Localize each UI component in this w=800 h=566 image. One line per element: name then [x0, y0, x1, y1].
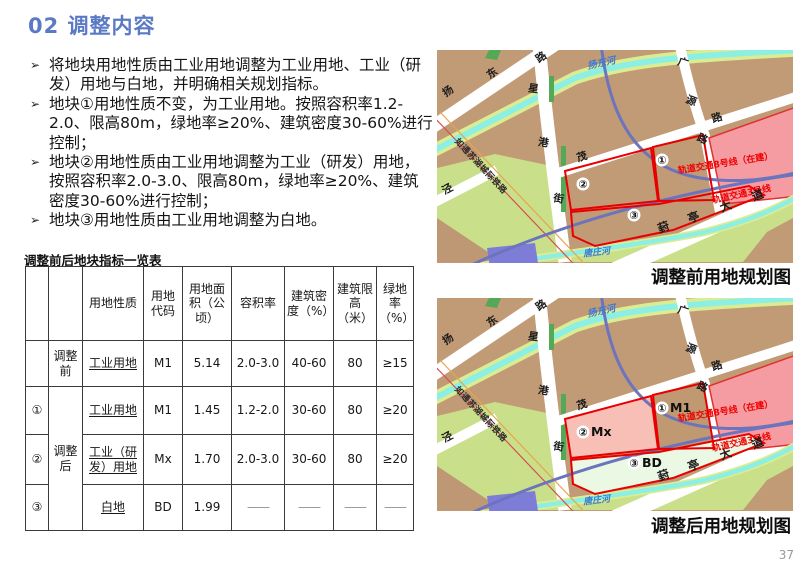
- density-cell: 30-60: [285, 435, 334, 485]
- density-cell: 30-60: [285, 387, 334, 435]
- list-item: ➢ 地块③用地性质由工业用地调整为白地。: [30, 211, 434, 230]
- bullet-arrow-icon: ➢: [30, 211, 49, 230]
- list-item: ➢ 地块②用地性质由工业用地调整为工业（研发）用地，按照容积率2.0-3.0、限…: [30, 153, 434, 211]
- header-cell: 建筑密度（%）: [285, 267, 334, 341]
- land-use-cell: 工业用地: [83, 387, 144, 435]
- plot-id-cell: [26, 341, 49, 387]
- slide: 02 调整内容 ➢ 将地块用地性质由工业用地调整为工业用地、工业（研发）用地与白…: [0, 0, 800, 566]
- phase-cell: 调整前: [49, 341, 83, 387]
- green-cell: ≥20: [377, 387, 414, 435]
- page-number: 37: [779, 548, 794, 562]
- bullet-text: 地块①用地性质不变，为工业用地。按照容积率1.2-2.0、限高80m，绿地率≥2…: [49, 95, 434, 153]
- far-cell: 1.2-2.0: [232, 387, 285, 435]
- map-caption-before: 调整前用地规划图: [437, 264, 793, 289]
- green-cell: ≥15: [377, 341, 414, 387]
- header-cell: 用地代码: [144, 267, 183, 341]
- plot-id-cell: ③: [26, 485, 49, 531]
- bullet-arrow-icon: ➢: [30, 95, 49, 153]
- area-cell: 5.14: [183, 341, 232, 387]
- table-row: ③ 白地 BD 1.99 —— —— —— ——: [26, 485, 414, 531]
- plot-indicator-table: 用地性质 用地代码 用地面积（公顷） 容积率 建筑密度（%） 建筑限高（米） 绿…: [25, 266, 414, 531]
- table-header-row: 用地性质 用地代码 用地面积（公顷） 容积率 建筑密度（%） 建筑限高（米） 绿…: [26, 267, 414, 341]
- table-row: ① 调整后 工业用地 M1 1.45 1.2-2.0 30-60 80 ≥20: [26, 387, 414, 435]
- plot-id-cell: ①: [26, 387, 49, 435]
- table-row: 调整前 工业用地 M1 5.14 2.0-3.0 40-60 80 ≥15: [26, 341, 414, 387]
- land-use-cell: 白地: [83, 485, 144, 531]
- bullet-text: 将地块用地性质由工业用地调整为工业用地、工业（研发）用地与白地，并明确相关规划指…: [49, 56, 434, 95]
- land-use-cell: 工业（研发）用地: [83, 435, 144, 485]
- bullet-arrow-icon: ➢: [30, 153, 49, 211]
- height-cell: 80: [334, 435, 377, 485]
- map-caption-after: 调整后用地规划图: [437, 513, 793, 538]
- plot-id-cell: ②: [26, 435, 49, 485]
- code-cell: M1: [144, 341, 183, 387]
- header-cell: 绿地率（%）: [377, 267, 414, 341]
- header-cell: [49, 267, 83, 341]
- planning-map-after: M1 Mx BD: [437, 298, 793, 511]
- header-cell: 用地面积（公顷）: [183, 267, 232, 341]
- bullet-text: 地块②用地性质由工业用地调整为工业（研发）用地，按照容积率2.0-3.0、限高8…: [49, 153, 434, 211]
- far-cell: 2.0-3.0: [232, 341, 285, 387]
- plot-2-code: Mx: [591, 424, 612, 439]
- green-cell: ——: [377, 485, 414, 531]
- header-cell: [26, 267, 49, 341]
- land-use-cell: 工业用地: [83, 341, 144, 387]
- header-cell: 建筑限高（米）: [334, 267, 377, 341]
- code-cell: M1: [144, 387, 183, 435]
- phase-cell: 调整后: [49, 387, 83, 531]
- planning-map-before: [437, 50, 793, 263]
- height-cell: ——: [334, 485, 377, 531]
- height-cell: 80: [334, 341, 377, 387]
- green-cell: ≥20: [377, 435, 414, 485]
- code-cell: BD: [144, 485, 183, 531]
- area-cell: 1.99: [183, 485, 232, 531]
- bullet-arrow-icon: ➢: [30, 56, 49, 95]
- header-cell: 用地性质: [83, 267, 144, 341]
- plot-1-code: M1: [670, 400, 691, 415]
- area-cell: 1.70: [183, 435, 232, 485]
- table-row: ② 工业（研发）用地 Mx 1.70 2.0-3.0 30-60 80 ≥20: [26, 435, 414, 485]
- bullet-text: 地块③用地性质由工业用地调整为白地。: [49, 211, 434, 230]
- plot-3-code: BD: [642, 455, 662, 470]
- list-item: ➢ 地块①用地性质不变，为工业用地。按照容积率1.2-2.0、限高80m，绿地率…: [30, 95, 434, 153]
- density-cell: ——: [285, 485, 334, 531]
- header-cell: 容积率: [232, 267, 285, 341]
- page-title: 02 调整内容: [28, 10, 156, 40]
- area-cell: 1.45: [183, 387, 232, 435]
- list-item: ➢ 将地块用地性质由工业用地调整为工业用地、工业（研发）用地与白地，并明确相关规…: [30, 56, 434, 95]
- bullet-list: ➢ 将地块用地性质由工业用地调整为工业用地、工业（研发）用地与白地，并明确相关规…: [30, 56, 434, 230]
- density-cell: 40-60: [285, 341, 334, 387]
- far-cell: ——: [232, 485, 285, 531]
- code-cell: Mx: [144, 435, 183, 485]
- height-cell: 80: [334, 387, 377, 435]
- far-cell: 2.0-3.0: [232, 435, 285, 485]
